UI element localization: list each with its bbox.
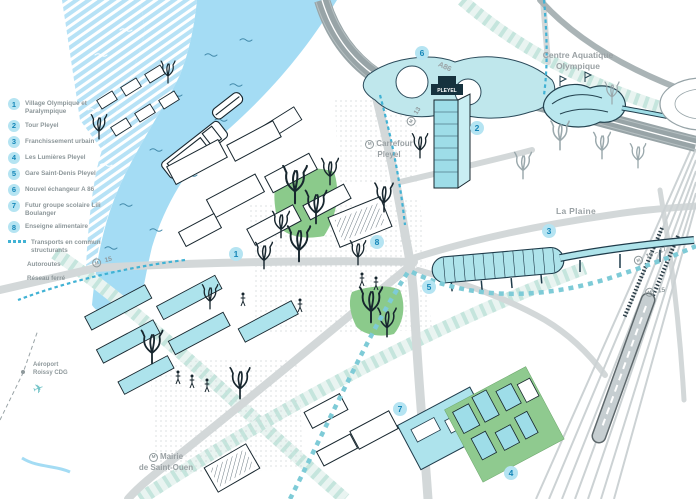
legend-item-4: 4 Les Lumières Pleyel: [8, 152, 104, 164]
station-name: Mairie: [160, 452, 183, 461]
legend-item-label: Tour Pleyel: [25, 120, 58, 130]
map-marker-5: 5: [422, 280, 436, 294]
legend-line-rail: Réseau ferré: [8, 273, 104, 283]
label-centre-aquatique: Centre Aquatique Olympique: [523, 50, 633, 73]
map-marker-6: 6: [415, 46, 429, 60]
metro-icon: M: [365, 140, 374, 149]
marker-number: 3: [547, 226, 552, 236]
airport-name: Aéroport: [33, 361, 68, 369]
label-la-plaine: La Plaine: [556, 206, 596, 216]
legend-line-label: Transports en commun structurants: [31, 237, 104, 255]
legend-item-label: Futur groupe scolaire Lili Boulanger: [25, 200, 104, 218]
marker-number: 7: [398, 404, 403, 414]
legend-number-badge: 3: [8, 136, 20, 148]
legend-item-7: 7 Futur groupe scolaire Lili Boulanger: [8, 200, 104, 218]
airport-name-line2: Roissy CDG: [33, 369, 68, 377]
legend-number-badge: 7: [8, 200, 20, 212]
legend-item-label: Gare Saint-Denis Pleyel: [25, 168, 96, 178]
station-name-line2: de Saint-Ouen: [120, 463, 212, 474]
metro-icon: M: [149, 453, 158, 462]
illustrated-map-pleyel: PLEYEL: [0, 0, 696, 499]
legend-item-1: 1 Village Olympique et Paralympique: [8, 98, 104, 116]
legend-number-badge: 2: [8, 120, 20, 132]
map-marker-3: 3: [542, 224, 556, 238]
legend-item-3: 3 Franchissement urbain: [8, 136, 104, 148]
tour-pleyel-sign: PLEYEL: [437, 88, 456, 94]
legend-item-label: Enseigne alimentaire: [25, 221, 88, 231]
legend-number-badge: 8: [8, 221, 20, 233]
legend-item-5: 5 Gare Saint-Denis Pleyel: [8, 168, 104, 180]
metro-icon: M: [644, 287, 654, 297]
line-number: 15: [657, 287, 665, 295]
legend-number-badge: 5: [8, 168, 20, 180]
map-marker-7: 7: [393, 402, 407, 416]
legend-line-label: Autoroutes: [27, 259, 61, 269]
legend-item-label: Franchissement urbain: [25, 136, 94, 146]
legend-item-label: Village Olympique et Paralympique: [25, 98, 104, 116]
label-airport: Aéroport Roissy CDG: [33, 361, 68, 378]
legend-number-badge: 6: [8, 184, 20, 196]
line-number: 15: [104, 256, 113, 265]
legend-item-2: 2 Tour Pleyel: [8, 120, 104, 132]
legend-line-transit: Transports en commun structurants: [8, 237, 104, 255]
legend: 1 Village Olympique et Paralympique 2 To…: [8, 98, 104, 287]
legend-item-6: 6 Nouvel échangeur A 86: [8, 184, 104, 196]
dotted-line-icon: [8, 240, 26, 243]
marker-number: 1: [234, 249, 239, 259]
marker-number: 6: [420, 48, 425, 58]
legend-line-label: Réseau ferré: [27, 273, 65, 283]
les-lumieres-pleyel: [444, 367, 564, 483]
legend-line-autoroutes: Autoroutes: [8, 259, 104, 269]
legend-item-label: Les Lumières Pleyel: [25, 152, 86, 162]
legend-number-badge: 1: [8, 98, 20, 110]
marker-number: 4: [509, 468, 514, 478]
label-mairie-saint-ouen: MMairie de Saint-Ouen: [120, 452, 212, 474]
marker-number: 8: [375, 237, 380, 247]
marker-number: 5: [427, 282, 432, 292]
rail-yard: [536, 138, 696, 499]
legend-item-8: 8 Enseigne alimentaire: [8, 221, 104, 233]
map-marker-2: 2: [470, 121, 484, 135]
map-marker-8: 8: [370, 235, 384, 249]
airport-route-line: [0, 330, 70, 472]
map-canvas: PLEYEL: [0, 0, 696, 499]
label-carrefour-pleyel: MCarrefour Pleyel: [356, 139, 422, 161]
marker-number: 2: [475, 123, 480, 133]
legend-item-label: Nouvel échangeur A 86: [25, 184, 94, 194]
map-marker-4: 4: [504, 466, 518, 480]
station-name: Carrefour Pleyel: [376, 139, 412, 159]
map-marker-1: 1: [229, 247, 243, 261]
legend-number-badge: 4: [8, 152, 20, 164]
airport-dot: [21, 370, 25, 374]
